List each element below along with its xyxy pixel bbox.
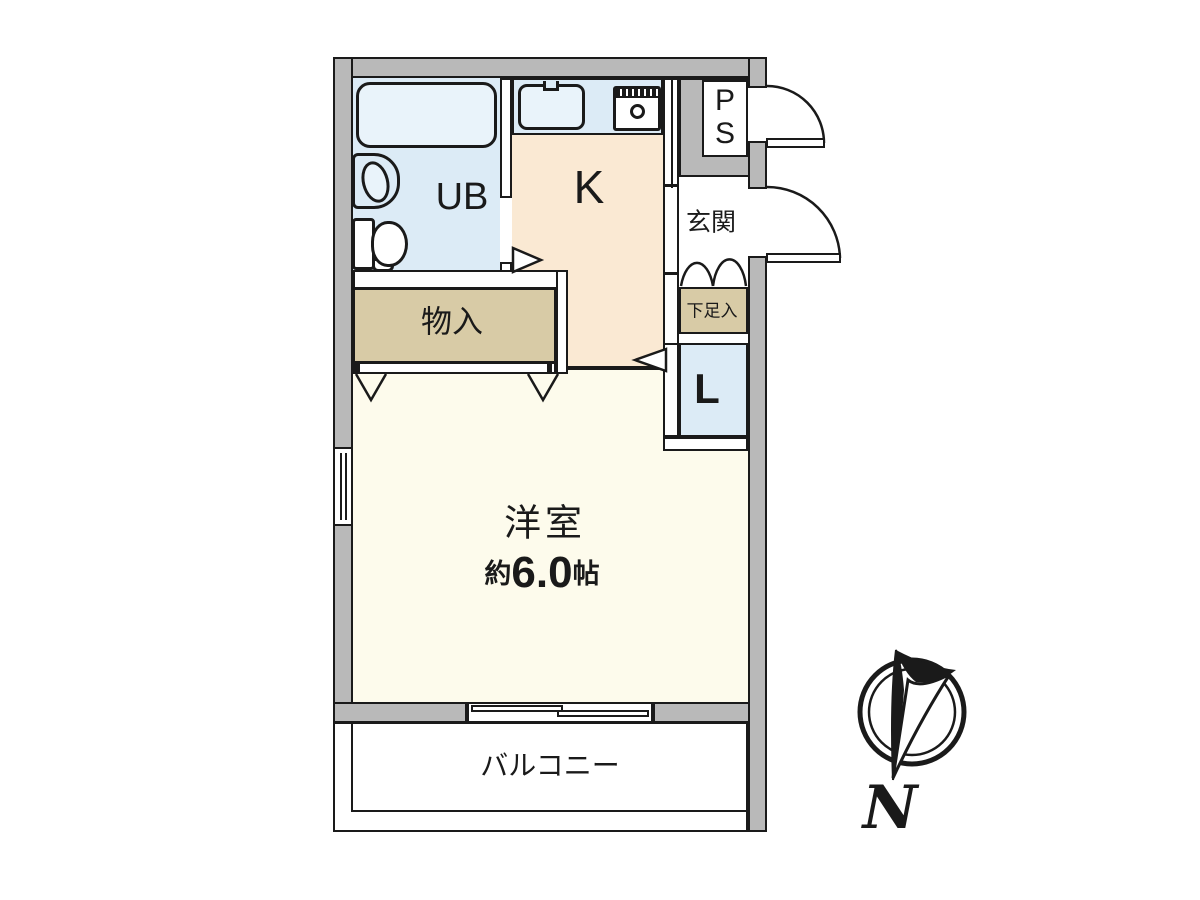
ub-kitchen-wall xyxy=(500,78,512,198)
size-value: 6.0 xyxy=(511,548,572,597)
balcony-label: バルコニー xyxy=(480,752,619,780)
track-end-right xyxy=(547,364,552,372)
sliding-pane-right xyxy=(557,710,649,717)
compass-north-label: N xyxy=(861,773,920,843)
storage-top-wall xyxy=(353,270,568,289)
genkan-label: 玄関 xyxy=(686,211,736,236)
ps-label-line1: P xyxy=(715,86,735,116)
bathtub xyxy=(356,82,497,148)
storage-label: 物入 xyxy=(421,307,483,338)
size-unit: 帖 xyxy=(573,559,600,589)
stove-burner xyxy=(630,104,645,119)
door-swing-arc xyxy=(767,187,840,258)
track-end-left xyxy=(355,364,360,372)
toilet-bowl xyxy=(371,221,408,267)
laundry-label: L xyxy=(694,368,720,410)
entrance-door-opening xyxy=(748,187,767,258)
door-swing-arc xyxy=(767,86,824,143)
western-room-label: 洋室 xyxy=(504,505,586,542)
window-pane-line xyxy=(340,453,342,520)
storage-door-track xyxy=(353,362,556,374)
storage-right-wall xyxy=(556,270,568,374)
ps-door-opening xyxy=(748,86,767,143)
shaft-line xyxy=(671,80,673,188)
wall-cap-2 xyxy=(663,272,679,275)
ub-label: UB xyxy=(436,178,489,216)
laundry-left-wall xyxy=(663,343,679,437)
kitchen-label: K xyxy=(574,164,605,210)
wall-top xyxy=(333,57,767,78)
size-prefix: 約 xyxy=(484,559,511,589)
laundry-bottom-wall xyxy=(663,437,748,451)
wall-bottom-left xyxy=(333,702,467,723)
washbasin-bowl xyxy=(357,158,393,205)
door-leaf xyxy=(767,139,824,147)
stove-back-panel xyxy=(616,89,658,98)
wall-left xyxy=(333,57,353,723)
west-window xyxy=(333,447,353,526)
washbasin xyxy=(352,153,400,209)
sink-faucet-notch xyxy=(543,81,559,91)
window-pane-line xyxy=(345,453,347,520)
shoe-box-label: 下足入 xyxy=(687,303,738,320)
ps-label-line2: S xyxy=(715,119,735,149)
floor-plan-canvas: N UB K P S 玄関 下足入 L 物入 洋室 約6.0帖 バルコニー xyxy=(0,0,1200,900)
wall-right xyxy=(748,57,767,832)
compass-north-icon: N xyxy=(860,650,964,843)
door-leaf xyxy=(767,254,840,262)
western-room-size: 約6.0帖 xyxy=(484,551,599,595)
sliding-pane-left xyxy=(471,705,563,712)
stove xyxy=(613,86,661,131)
wall-cap-1 xyxy=(663,184,679,187)
